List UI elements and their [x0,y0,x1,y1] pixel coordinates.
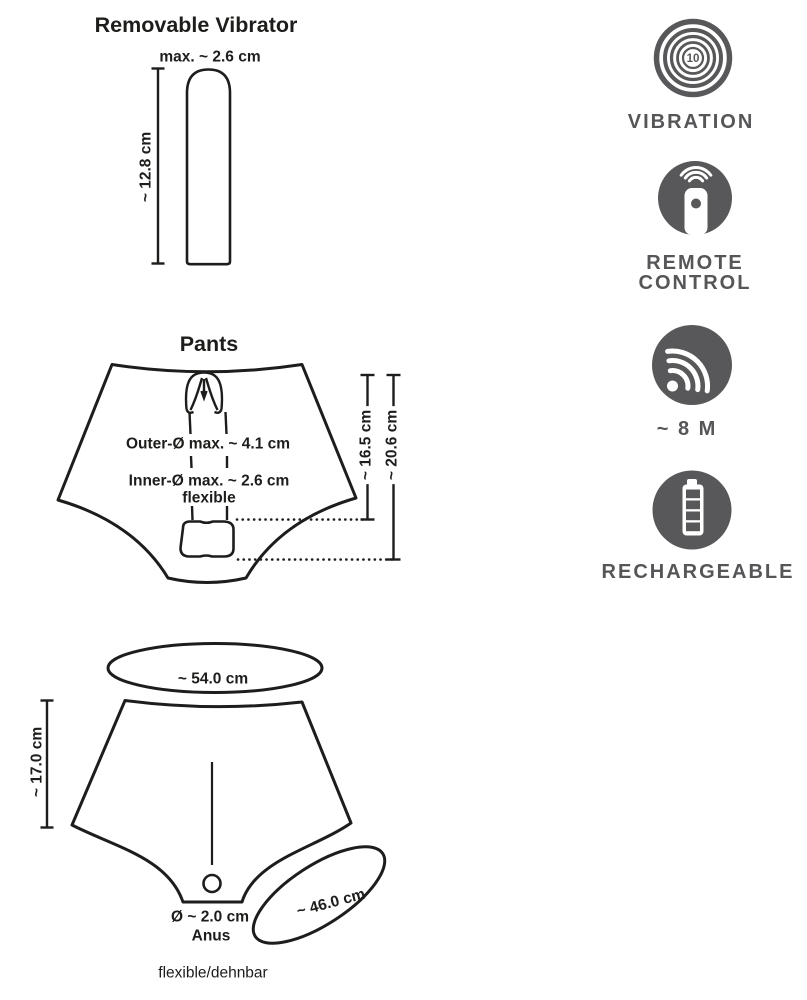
dotted-leader-lines [237,520,393,560]
diagram-artwork [0,0,807,1000]
waist-circumference-label: ~ 54.0 cm [178,670,248,687]
vibrator-title: Removable Vibrator [95,14,298,38]
flexible-label: flexible [182,489,235,506]
vibration-label: VIBRATION [628,112,755,132]
leg-circumference-ellipse [239,829,399,961]
vibrator-width-label: max. ~ 2.6 cm [159,48,260,65]
remote-control-label: REMOTE CONTROL [625,253,765,293]
outer-length-label: ~ 20.6 cm [383,406,400,484]
range-label: ~ 8 M [657,419,718,439]
sleeve-bulb [181,522,234,557]
range-icon [652,325,732,405]
stretch-label: flexible/dehnbar [158,964,267,981]
outer-diameter-label: Outer-Ø max. ~ 4.1 cm [126,435,290,452]
rechargeable-icon [653,471,732,550]
height-label: ~ 17.0 cm [28,727,45,797]
rechargeable-label: RECHARGEABLE [602,562,795,582]
pants-title: Pants [180,333,239,357]
vibrator-outline [187,70,230,265]
inner-length-label: ~ 16.5 cm [357,406,374,484]
anus-label: Anus [192,927,231,944]
product-dimension-diagram: Removable Vibrator max. ~ 2.6 cm ~ 12.8 … [0,0,807,1000]
sleeve-opening [186,373,222,413]
remote-control-icon [658,161,732,235]
vibration-modes-count: 10 [687,53,700,65]
anus-diameter-label: Ø ~ 2.0 cm [171,908,249,925]
anus-hole [204,875,221,892]
inner-diameter-label: Inner-Ø max. ~ 2.6 cm [129,472,290,489]
vibrator-length-label: ~ 12.8 cm [137,132,154,202]
vibrator-diagram [152,69,231,265]
